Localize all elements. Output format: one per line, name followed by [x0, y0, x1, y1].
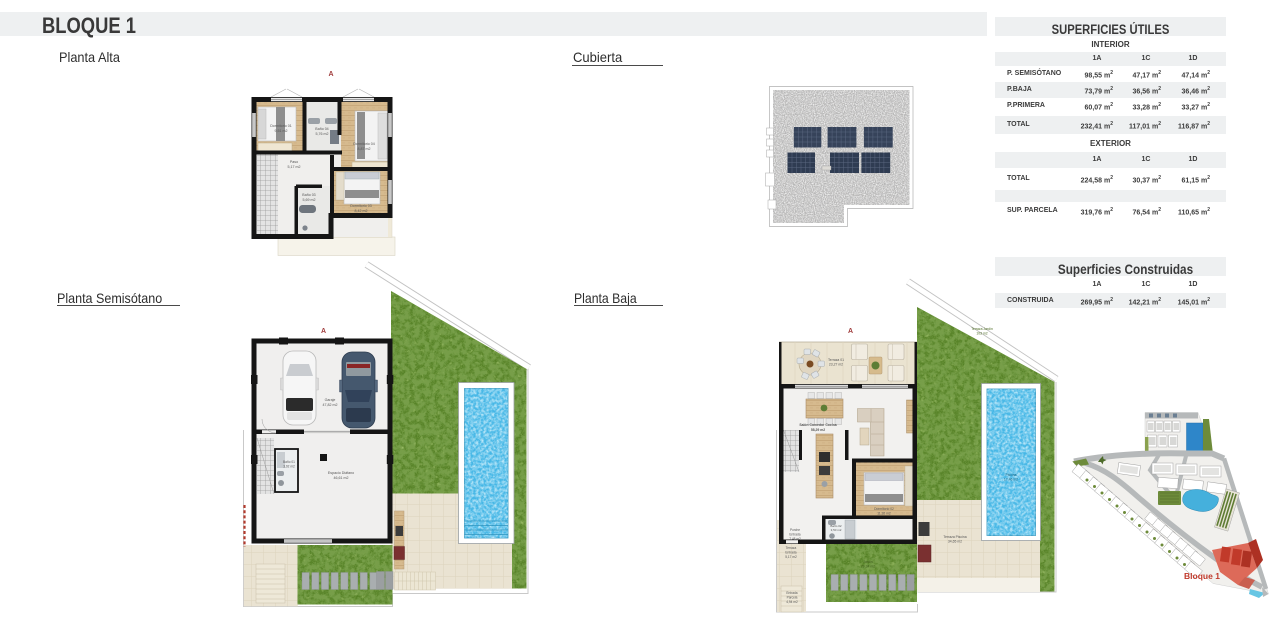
svg-text:Terraza 01: Terraza 01 — [828, 358, 844, 362]
svg-text:58,29 m2: 58,29 m2 — [811, 428, 825, 432]
svg-text:11,92 m2: 11,92 m2 — [877, 512, 891, 516]
svg-text:Porche: Porche — [790, 528, 800, 532]
svg-text:A: A — [848, 328, 853, 335]
svg-text:Entrada: Entrada — [785, 551, 796, 555]
svg-text:A: A — [321, 328, 326, 335]
svg-text:Baño 03: Baño 03 — [302, 193, 315, 197]
svg-text:9,51 m2: 9,51 m2 — [275, 129, 288, 133]
svg-text:23,27 m2: 23,27 m2 — [829, 363, 843, 367]
svg-text:Terraza Jardín: Terraza Jardín — [971, 327, 993, 331]
svg-text:47,82 m2: 47,82 m2 — [323, 403, 338, 407]
svg-text:3,92 m2: 3,92 m2 — [283, 465, 295, 469]
svg-text:46,61 m2: 46,61 m2 — [334, 476, 349, 480]
svg-text:Espacio Diáfano: Espacio Diáfano — [328, 471, 354, 475]
svg-text:Entrada: Entrada — [786, 591, 797, 595]
svg-text:5,76 m2: 5,76 m2 — [316, 132, 329, 136]
svg-text:Parcela: Parcela — [787, 596, 798, 600]
svg-text:103 m2: 103 m2 — [976, 332, 987, 336]
svg-text:5,69 m2: 5,69 m2 — [303, 198, 316, 202]
svg-text:5,17 m2: 5,17 m2 — [785, 555, 797, 559]
svg-text:Garaje: Garaje — [325, 398, 336, 402]
svg-text:Dormitorio 03: Dormitorio 03 — [350, 204, 372, 208]
svg-text:Dormitorio 01: Dormitorio 01 — [270, 124, 292, 128]
svg-text:Bloque 1: Bloque 1 — [1184, 571, 1220, 581]
svg-text:8,42 m2: 8,42 m2 — [355, 209, 368, 213]
svg-text:Terraza: Terraza — [786, 546, 797, 550]
svg-text:Baño 04: Baño 04 — [315, 127, 328, 131]
svg-text:Dormitorio 02: Dormitorio 02 — [874, 507, 894, 511]
svg-text:Terraza Piscina: Terraza Piscina — [943, 535, 966, 539]
svg-text:8,87 m2: 8,87 m2 — [358, 147, 371, 151]
svg-text:34,65 m2: 34,65 m2 — [948, 540, 962, 544]
svg-text:Piscina: Piscina — [1006, 473, 1017, 477]
svg-text:17,46 m2: 17,46 m2 — [1004, 478, 1018, 482]
svg-text:Paso: Paso — [290, 160, 298, 164]
svg-text:29,34 m2: 29,34 m2 — [861, 565, 875, 569]
svg-text:Entrada: Entrada — [789, 533, 800, 537]
svg-text:4,94 m2: 4,94 m2 — [786, 600, 798, 604]
svg-text:Baño 01: Baño 01 — [283, 460, 295, 464]
svg-text:3,50 m2: 3,50 m2 — [831, 528, 842, 532]
svg-text:Salón Comedor Cocina: Salón Comedor Cocina — [799, 423, 836, 427]
svg-text:A: A — [328, 71, 333, 78]
svg-text:Jardín: Jardín — [863, 560, 873, 564]
svg-text:5,17 m2: 5,17 m2 — [288, 165, 301, 169]
svg-text:Dormitorio 04: Dormitorio 04 — [353, 142, 375, 146]
